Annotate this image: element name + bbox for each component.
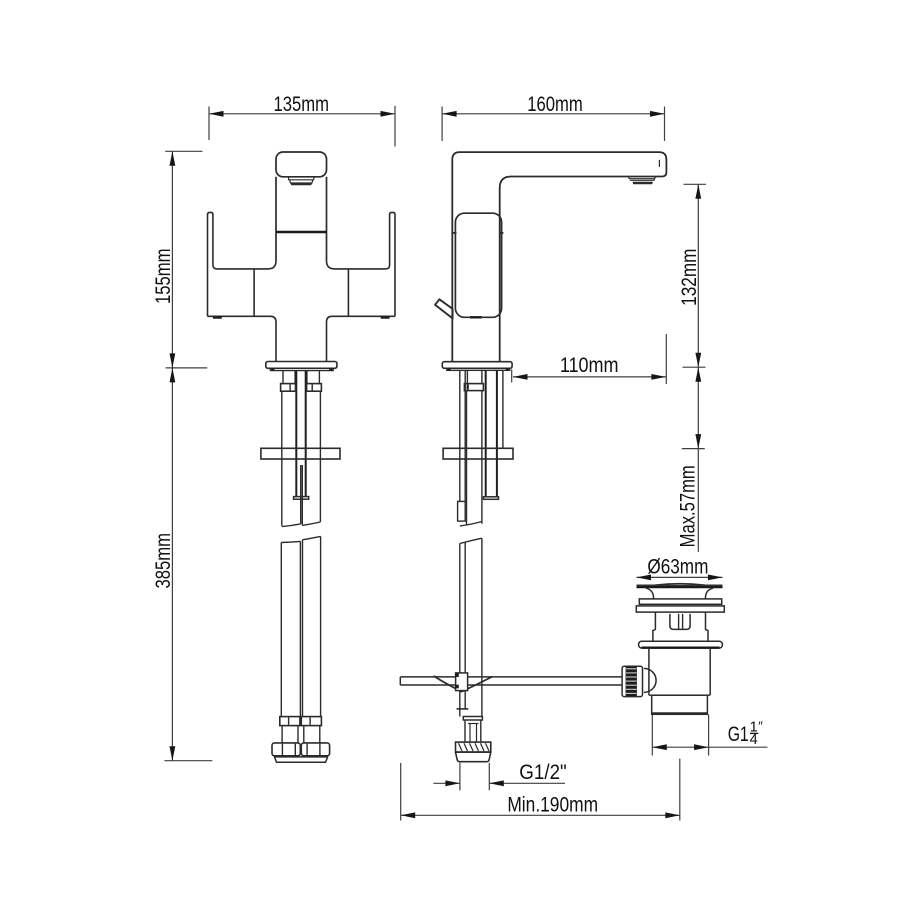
svg-text:155mm: 155mm	[152, 248, 175, 304]
svg-text:Max.57mm: Max.57mm	[676, 465, 699, 547]
svg-text:160mm: 160mm	[527, 93, 583, 116]
svg-text:G1: G1	[728, 723, 749, 746]
svg-text:Ø63mm: Ø63mm	[647, 555, 708, 578]
svg-text:135mm: 135mm	[273, 93, 329, 116]
svg-text:Min.190mm: Min.190mm	[507, 793, 598, 816]
svg-text:110mm: 110mm	[560, 354, 619, 377]
svg-text:385mm: 385mm	[152, 533, 175, 589]
svg-text:″: ″	[758, 719, 763, 734]
svg-text:4: 4	[750, 732, 758, 748]
svg-text:132mm: 132mm	[678, 249, 701, 306]
svg-text:G1/2": G1/2"	[519, 761, 566, 784]
